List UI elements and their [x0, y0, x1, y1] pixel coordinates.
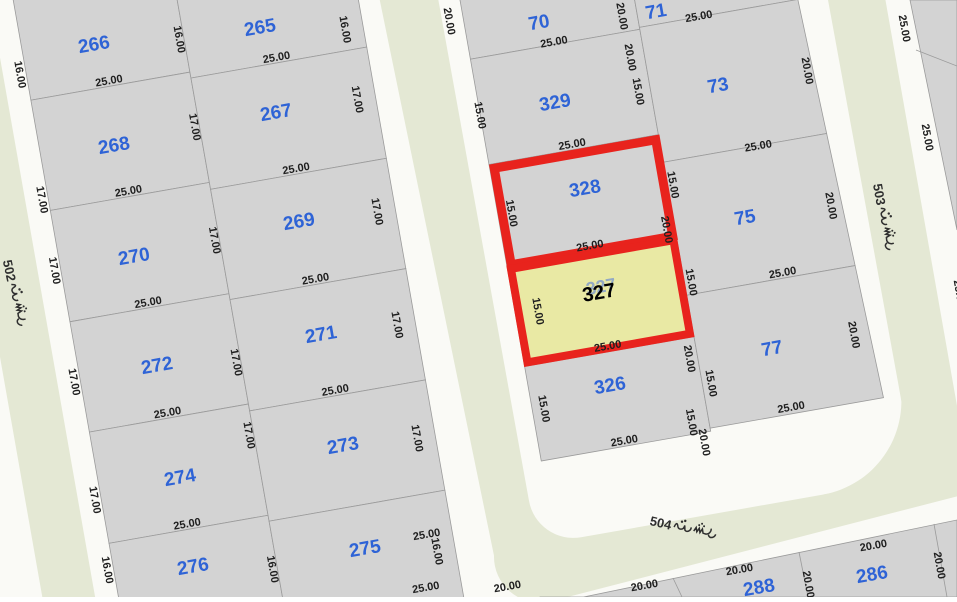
- svg-text:70: 70: [527, 11, 551, 35]
- svg-text:71: 71: [644, 0, 669, 24]
- svg-text:73: 73: [706, 74, 730, 98]
- svg-text:75: 75: [733, 206, 758, 230]
- svg-text:77: 77: [760, 337, 784, 361]
